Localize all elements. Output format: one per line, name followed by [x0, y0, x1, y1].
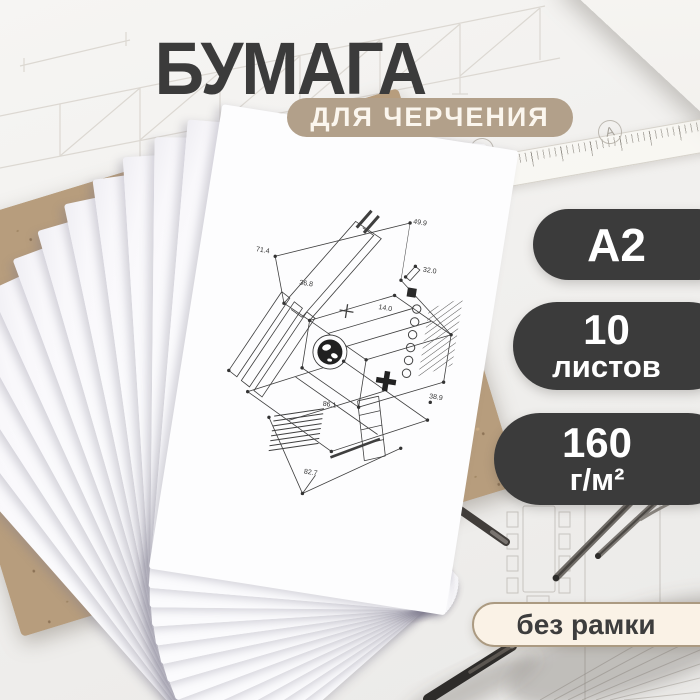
feature-badge: без рамки: [472, 602, 700, 647]
density-value: 160: [562, 422, 632, 464]
count-unit: листов: [552, 351, 661, 384]
filled-square: [407, 287, 417, 297]
dim-label: 14.0: [378, 304, 393, 313]
size-label: А2: [587, 218, 646, 272]
dim-label: 32.0: [422, 267, 437, 276]
dim-label: 82.7: [303, 468, 318, 477]
subtitle-badge: ДЛЯ ЧЕРЧЕНИЯ: [287, 98, 573, 137]
bold-plus-icon: [375, 370, 398, 393]
spec-badge-size: А2: [533, 209, 700, 280]
dim-label: 36.8: [299, 279, 314, 288]
dim-label: 86.1: [322, 401, 337, 410]
globe-icon: [310, 333, 349, 372]
product-image: В А: [0, 0, 700, 700]
dim-label: 49.9: [413, 219, 428, 228]
bold-line: [330, 432, 380, 465]
circle-column: [402, 304, 422, 378]
density-unit: г/м²: [570, 464, 625, 497]
spec-badge-density: 160 г/м²: [494, 413, 700, 505]
dim-label: 71.4: [255, 246, 270, 255]
spec-badge-count: 10 листов: [513, 302, 700, 390]
count-value: 10: [583, 309, 630, 351]
